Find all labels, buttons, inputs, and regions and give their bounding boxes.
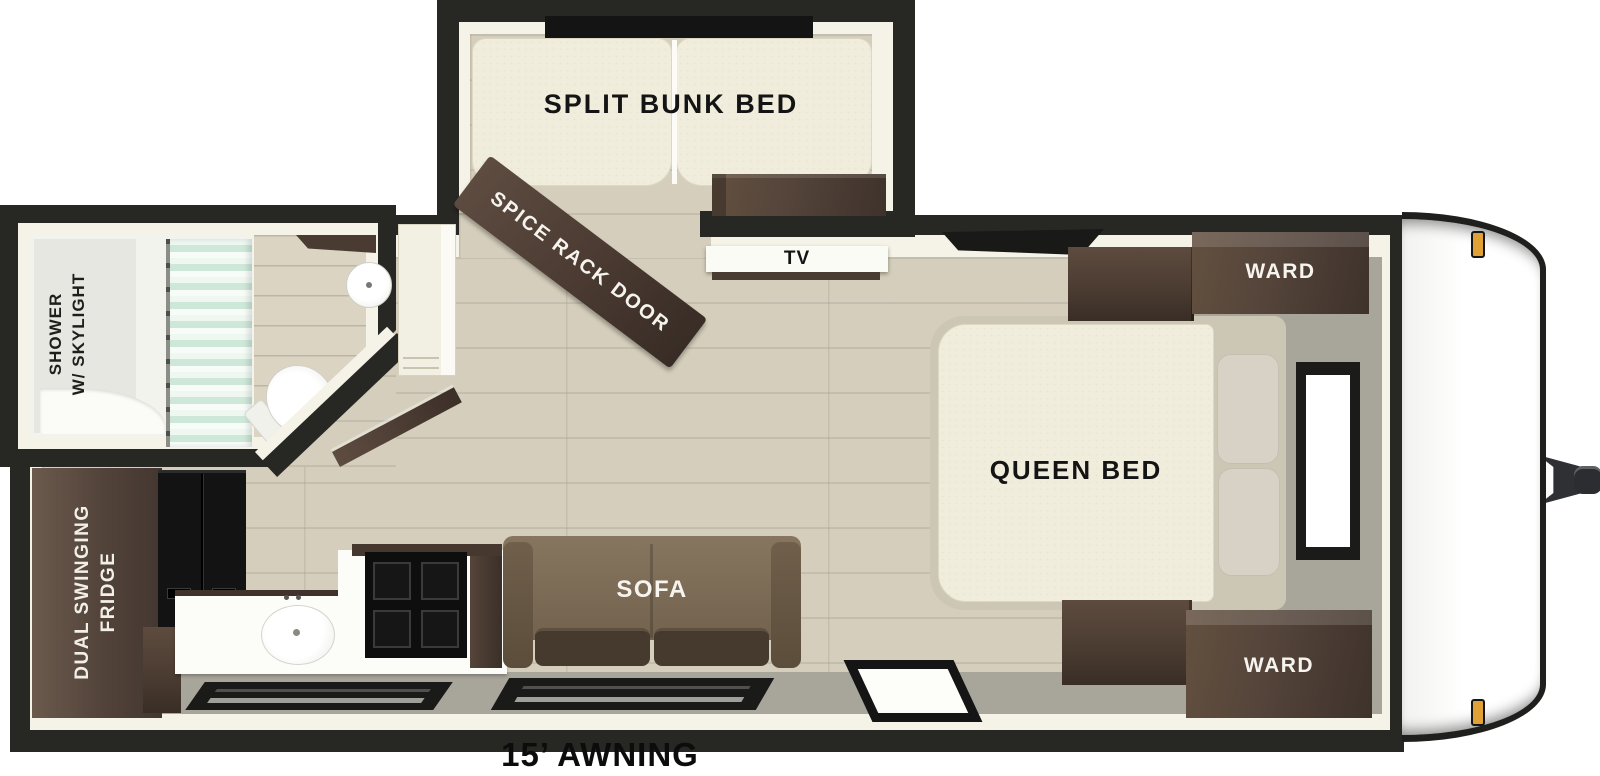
- kitchen-faucet-dot2: [296, 595, 301, 600]
- kitchen-sink-drain: [293, 629, 300, 636]
- sofa-cushion-left: [535, 628, 650, 666]
- wardrobe-top-label: WARD: [1192, 260, 1369, 284]
- shower-label-line1: SHOWER: [45, 293, 68, 376]
- stove-burner: [421, 562, 459, 600]
- sofa-arm-right: [771, 542, 801, 668]
- pantry-drawer-line2: [403, 367, 439, 369]
- marker-light-top: [1471, 231, 1485, 258]
- fridge-label: DUAL SWINGING FRIDGE: [31, 477, 161, 707]
- bathroom-sink-drain: [366, 282, 372, 288]
- wardrobe-top: WARD: [1192, 232, 1369, 314]
- pantry-cabinet: [398, 224, 456, 376]
- tv-label: TV: [706, 248, 888, 270]
- nightstand-bottom: [1062, 600, 1192, 685]
- sofa-arm-left: [503, 542, 533, 668]
- wardrobe-bottom: WARD: [1186, 610, 1372, 718]
- sofa: SOFA: [503, 536, 801, 670]
- bunk-bed-label: SPLIT BUNK BED: [470, 89, 872, 120]
- trailer-nose: [1402, 212, 1546, 742]
- marker-light-bottom: [1471, 699, 1485, 726]
- queen-bed-label: QUEEN BED: [938, 455, 1214, 486]
- shower-label: SHOWER W/ SKYLIGHT: [38, 226, 98, 442]
- wardrobe-top-face: [1192, 232, 1369, 247]
- fridge-label-line1: DUAL SWINGING: [70, 504, 96, 679]
- sofa-cushion-right: [654, 628, 769, 666]
- bunk-dresser: [712, 174, 886, 216]
- stove-burner: [373, 562, 411, 600]
- pillow-top: [1217, 354, 1279, 464]
- stove-burner: [373, 610, 411, 648]
- awning-label: 15’ AWNING: [420, 736, 780, 774]
- bedroom-window-pane: [1306, 375, 1350, 547]
- bedroom-window: [1296, 362, 1360, 560]
- window-kitchen: [185, 682, 453, 710]
- kitchen-faucet-dot1: [284, 595, 289, 600]
- floorplan: SPLIT BUNK BED TV SHOWER W/ SKYLIGHT SPI…: [0, 0, 1600, 776]
- shower-curtain: [170, 239, 252, 447]
- window-kitchen-slat2: [215, 689, 430, 692]
- wardrobe-bottom-label: WARD: [1186, 654, 1372, 678]
- stove: [365, 552, 467, 658]
- window-kitchen-slat: [207, 698, 424, 703]
- counter-end-panel: [470, 556, 502, 668]
- stove-burner: [421, 610, 459, 648]
- window-sofa-slat: [514, 697, 745, 702]
- pantry-drawer-line1: [403, 357, 439, 359]
- wardrobe-bottom-face: [1186, 610, 1372, 625]
- bunk-window: [545, 16, 813, 38]
- window-sofa-slat2: [521, 686, 751, 689]
- entry-door-panel: [858, 669, 969, 713]
- pillow-bottom: [1218, 468, 1280, 576]
- sofa-label: SOFA: [503, 576, 801, 604]
- window-sofa: [491, 678, 774, 710]
- overhead-cabinet-top: [1068, 247, 1194, 321]
- shower-label-line2: W/ SKYLIGHT: [68, 273, 91, 395]
- hitch-coupler: [1574, 466, 1600, 494]
- fridge-label-line2: FRIDGE: [96, 552, 122, 633]
- tv-cabinet-base: [712, 272, 880, 280]
